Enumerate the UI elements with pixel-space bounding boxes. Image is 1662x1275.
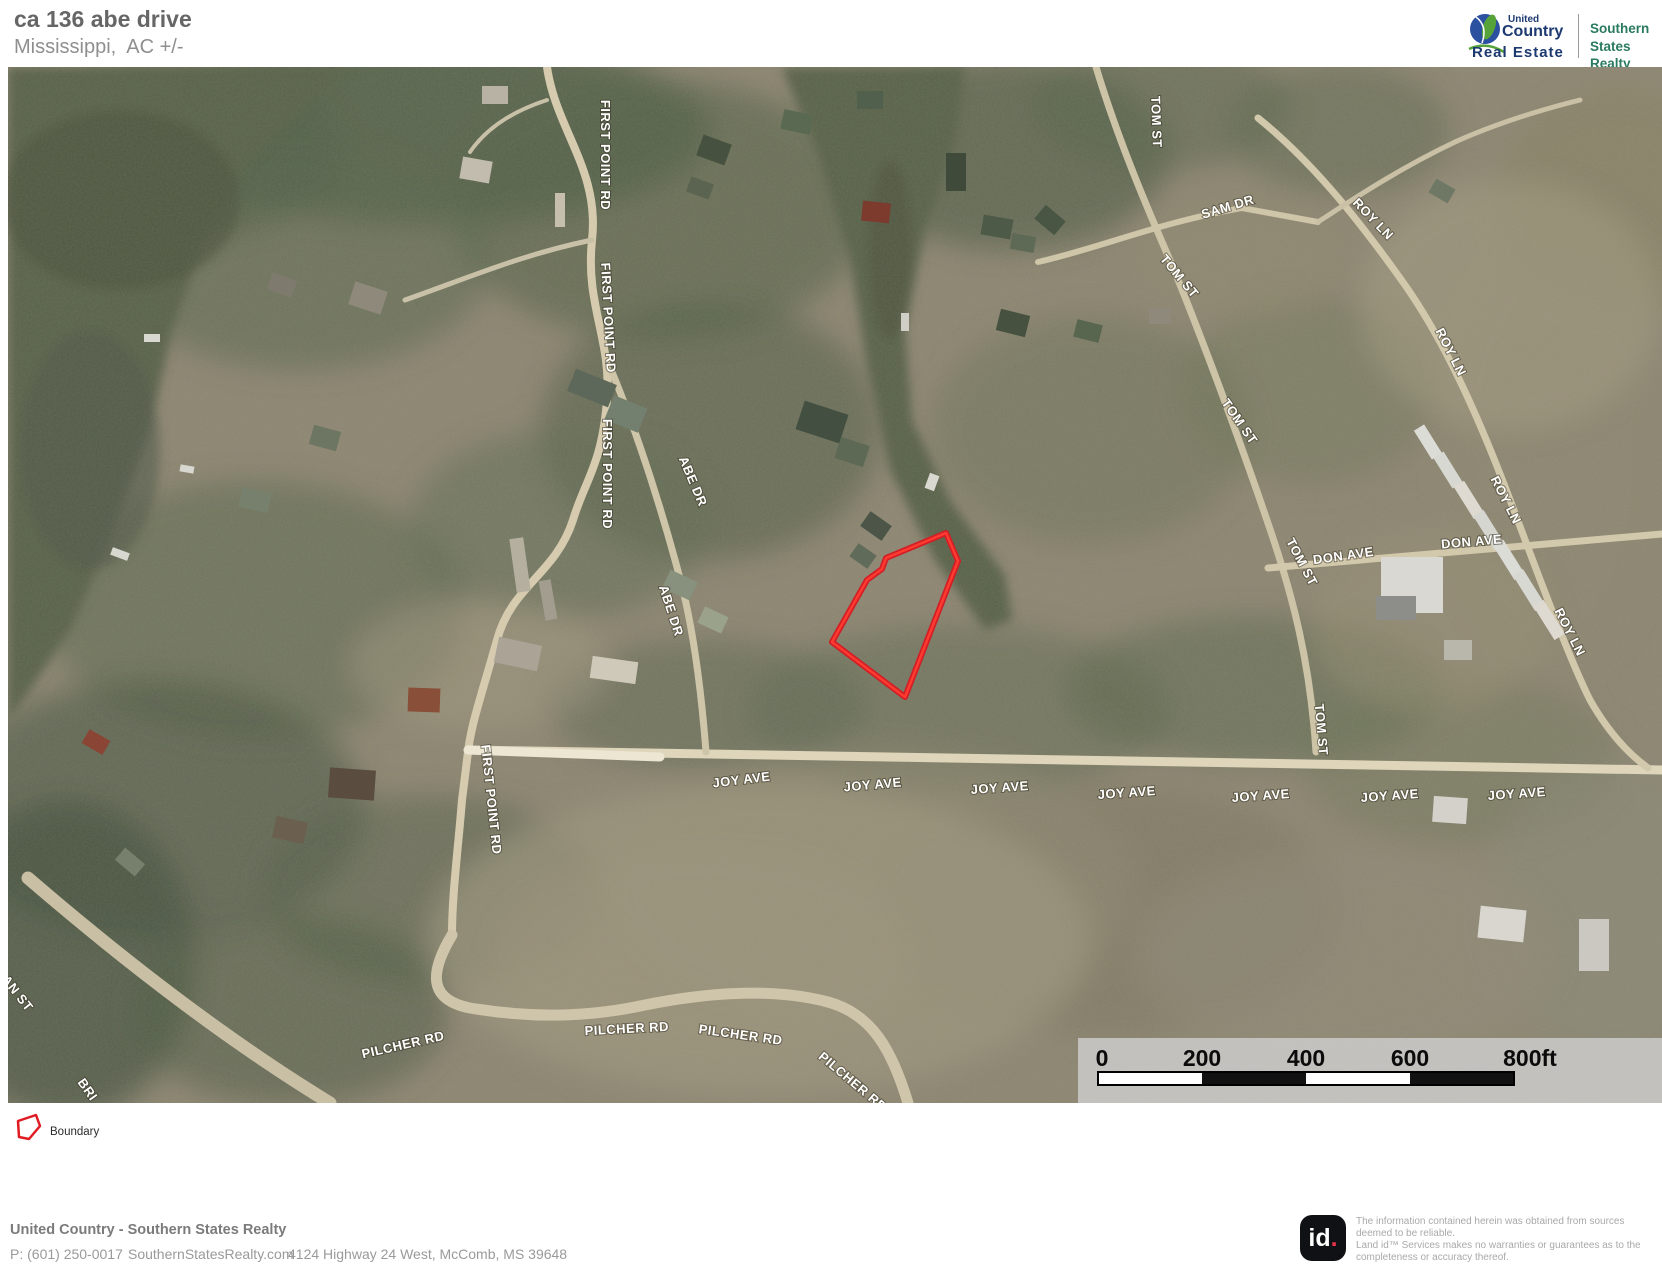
aerial-map-canvas: FIRST POINT RDFIRST POINT RDFIRST POINT …	[8, 67, 1662, 1103]
boundary-legend-icon	[12, 1112, 46, 1146]
scale-tick-label: 600	[1391, 1045, 1429, 1071]
footer-company: United Country - Southern States Realty	[10, 1222, 286, 1238]
page-title: ca 136 abe drive	[14, 6, 192, 33]
disclaimer-text: The information contained herein was obt…	[1356, 1216, 1656, 1264]
partner-name: Southern States Realty	[1590, 20, 1662, 73]
aerial-map: FIRST POINT RDFIRST POINT RDFIRST POINT …	[8, 67, 1662, 1103]
scale-bar: 0200400600800ft	[1078, 1038, 1662, 1103]
brand-name-bottom: Country	[1502, 23, 1563, 41]
page: { "header": { "title": "ca 136 abe drive…	[0, 0, 1662, 1275]
boundary-legend-label: Boundary	[50, 1126, 99, 1138]
footer-address: 4124 Highway 24 West, McComb, MS 39648	[288, 1246, 567, 1262]
scale-tick-label: 200	[1183, 1045, 1221, 1071]
street-label: TOM ST	[1148, 96, 1165, 148]
page-subtitle: Mississippi, AC +/-	[14, 36, 183, 59]
partner-name-top: Southern	[1590, 20, 1662, 38]
brand-tagline: Real Estate	[1472, 44, 1564, 61]
scale-tick-label: 400	[1287, 1045, 1325, 1071]
street-label: FIRST POINT RD	[600, 419, 615, 529]
land-id-logo: id.	[1300, 1215, 1346, 1261]
scale-tick-label: 800ft	[1503, 1045, 1557, 1071]
street-label: FIRST POINT RD	[598, 100, 613, 210]
legend: Boundary	[12, 1112, 46, 1152]
footer-phone: P: (601) 250-0017	[10, 1246, 123, 1262]
land-id-logo-text: id	[1308, 1224, 1330, 1252]
scale-tick-label: 0	[1096, 1045, 1109, 1071]
united-country-logo: United Country Real Estate Southern Stat…	[1468, 8, 1662, 64]
land-id-logo-dot: .	[1331, 1224, 1338, 1252]
logo-divider	[1578, 14, 1579, 58]
footer-website: SouthernStatesRealty.com	[128, 1246, 294, 1262]
